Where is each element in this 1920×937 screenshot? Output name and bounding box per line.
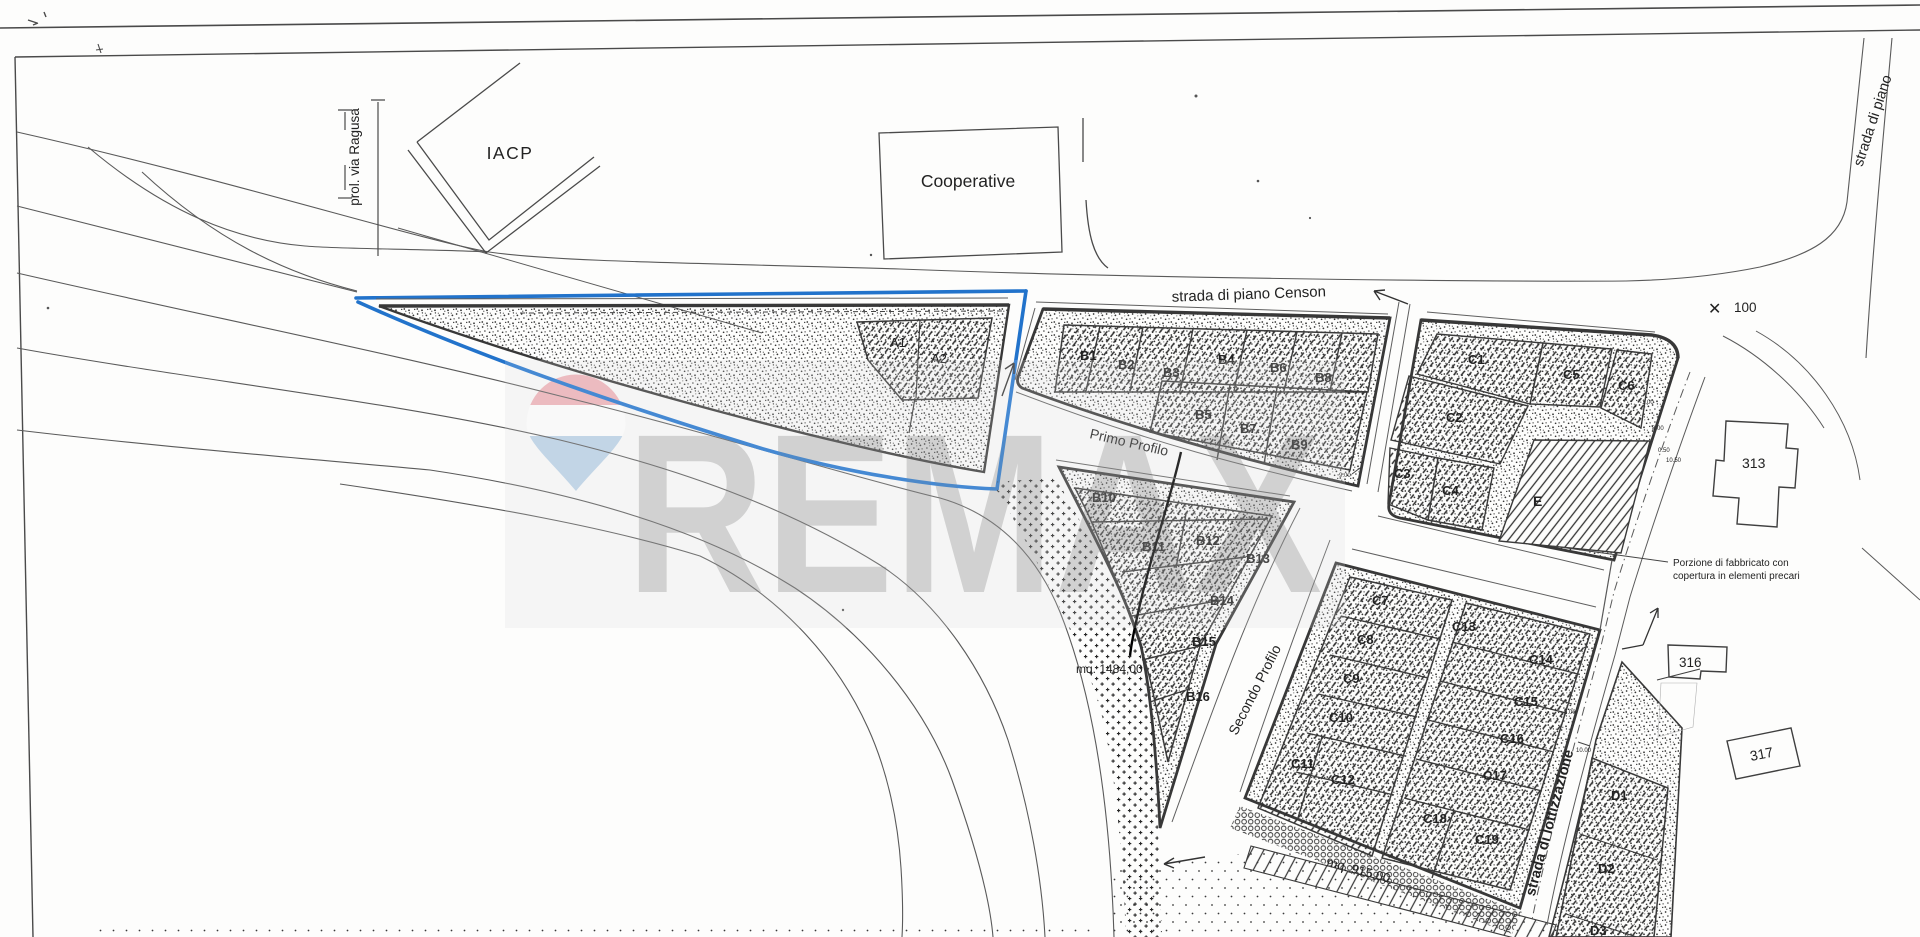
svg-text:A1: A1 [890, 335, 906, 350]
svg-text:prol. via Ragusa: prol. via Ragusa [347, 108, 362, 206]
svg-text:C9: C9 [1343, 671, 1360, 686]
svg-text:10.00: 10.00 [1576, 748, 1592, 754]
svg-text:C1: C1 [1468, 352, 1485, 367]
svg-text:10.50: 10.50 [1666, 458, 1682, 464]
svg-text:D1: D1 [1611, 788, 1628, 803]
svg-text:0.50: 0.50 [1658, 448, 1670, 454]
svg-text:✕: ✕ [1708, 301, 1721, 318]
svg-text:mq. 1484,00: mq. 1484,00 [1076, 662, 1143, 676]
svg-text:C14: C14 [1529, 652, 1554, 667]
svg-text:5.00: 5.00 [1564, 710, 1576, 716]
svg-text:B16: B16 [1186, 689, 1210, 704]
svg-text:1.00: 1.00 [1642, 400, 1654, 406]
svg-text:313: 313 [1742, 455, 1766, 471]
svg-text:Cooperative: Cooperative [921, 171, 1015, 191]
svg-text:C15: C15 [1514, 694, 1538, 709]
svg-text:C18: C18 [1423, 811, 1447, 826]
svg-text:C3: C3 [1394, 466, 1411, 481]
svg-text:100: 100 [1734, 300, 1757, 315]
svg-text:C13: C13 [1452, 619, 1476, 634]
svg-text:C2: C2 [1446, 410, 1463, 425]
svg-text:D3: D3 [1590, 923, 1607, 937]
svg-text:IACP: IACP [487, 143, 534, 163]
svg-text:E: E [1533, 493, 1542, 509]
svg-text:C16: C16 [1500, 731, 1524, 746]
svg-text:Porzione di fabbricato con: Porzione di fabbricato con [1673, 558, 1789, 569]
svg-text:D2: D2 [1598, 861, 1615, 876]
svg-text:316: 316 [1679, 655, 1702, 670]
svg-text:copertura in elementi precari: copertura in elementi precari [1673, 571, 1800, 582]
svg-text:C19: C19 [1475, 832, 1499, 847]
svg-text:C10: C10 [1329, 710, 1353, 725]
svg-text:C17: C17 [1483, 768, 1507, 783]
svg-text:C4: C4 [1442, 483, 1459, 498]
svg-text:C12: C12 [1331, 772, 1355, 787]
svg-text:8.00: 8.00 [1652, 426, 1664, 432]
svg-text:C8: C8 [1357, 632, 1374, 647]
svg-text:REMAX: REMAX [626, 388, 1322, 641]
svg-text:C6: C6 [1618, 378, 1635, 393]
svg-text:C7: C7 [1372, 593, 1389, 608]
svg-text:C5: C5 [1563, 367, 1580, 382]
svg-text:C11: C11 [1291, 756, 1314, 771]
